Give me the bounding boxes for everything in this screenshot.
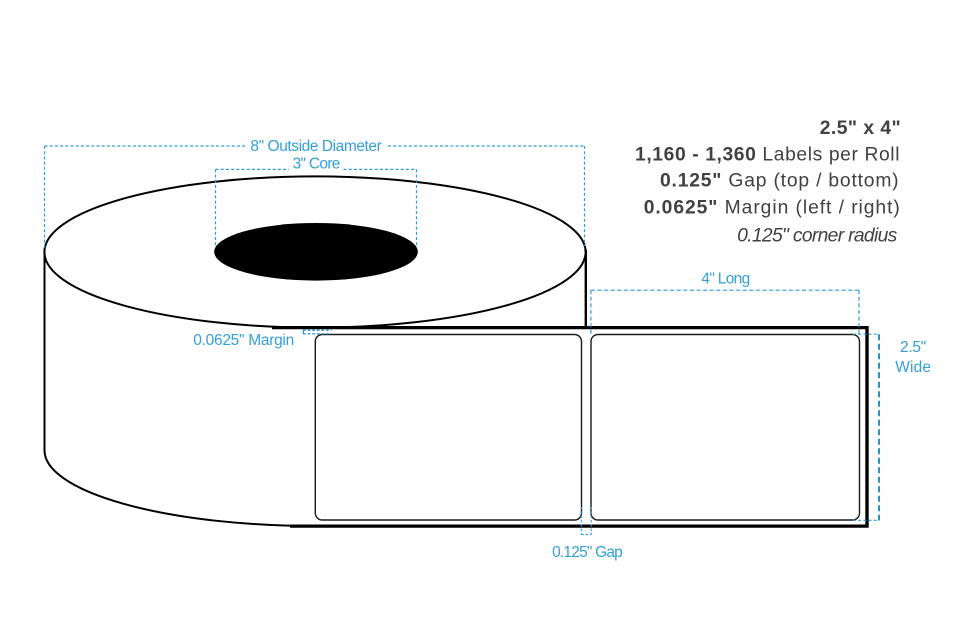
svg-text:0.0625" Margin: 0.0625" Margin [193,332,294,349]
svg-text:8" Outside Diameter: 8" Outside Diameter [250,138,381,155]
svg-text:4" Long: 4" Long [701,271,750,288]
svg-text:2.5": 2.5" [900,339,926,356]
svg-text:2.5" x 4": 2.5" x 4" [820,118,901,139]
svg-text:0.125" Gap: 0.125" Gap [552,544,623,561]
svg-text:0.125" Gap (top / bottom): 0.125" Gap (top / bottom) [660,170,899,191]
svg-text:0.0625" Margin (left / right): 0.0625" Margin (left / right) [644,197,900,218]
svg-text:1,160 - 1,360 Labels per Roll: 1,160 - 1,360 Labels per Roll [635,145,900,166]
svg-text:Wide: Wide [895,359,931,376]
svg-text:3" Core: 3" Core [293,156,341,173]
svg-text:0.125" corner radius: 0.125" corner radius [737,225,898,246]
